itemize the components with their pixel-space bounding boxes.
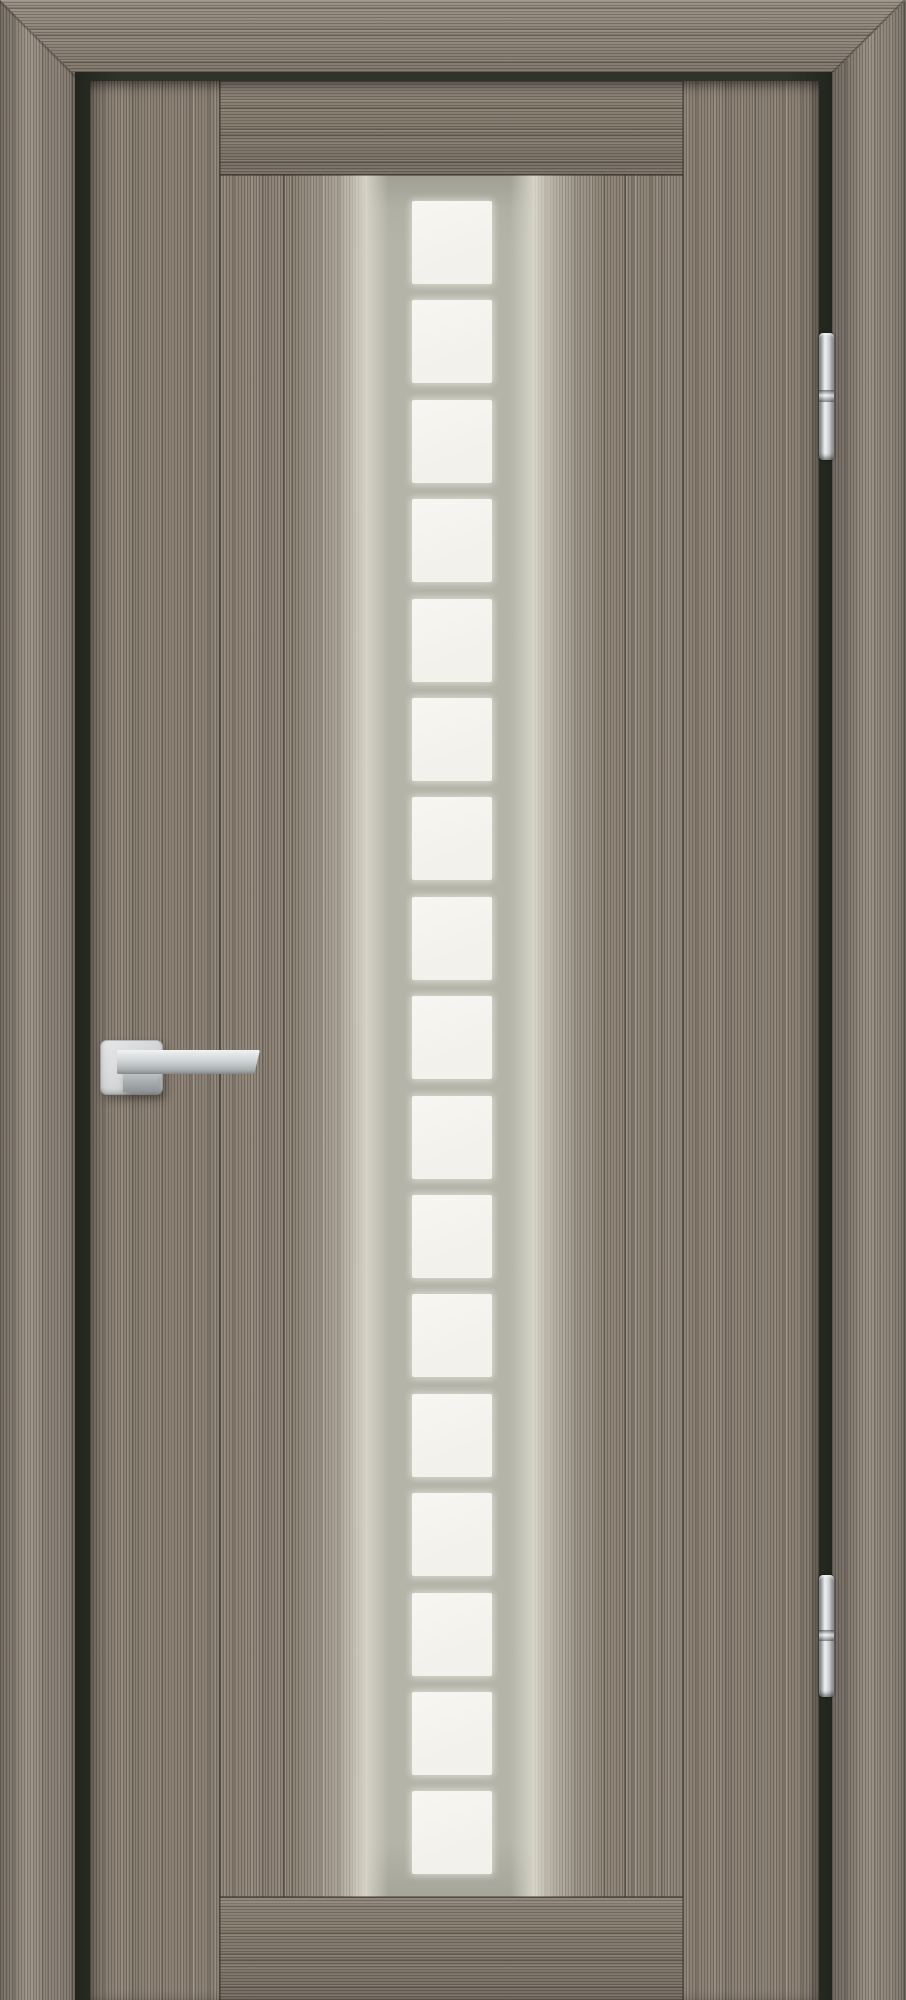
glass-pane bbox=[412, 897, 492, 980]
door-frame-left-casing bbox=[0, 0, 75, 2000]
handle-neck bbox=[123, 1072, 158, 1092]
glass-pane bbox=[412, 996, 492, 1079]
rail-seam-top bbox=[220, 174, 683, 176]
glass-pane bbox=[412, 1692, 492, 1775]
glass-pane bbox=[412, 1294, 492, 1377]
glass-pane bbox=[412, 1791, 492, 1874]
hinge-knuckle bbox=[819, 1630, 834, 1641]
glass-pane bbox=[412, 797, 492, 880]
door-frame-head-casing bbox=[0, 0, 906, 75]
door-stile-right bbox=[683, 81, 819, 2000]
door-panel-left-of-glass bbox=[220, 175, 367, 1897]
door-leaf bbox=[90, 81, 819, 2000]
door-rail-top bbox=[220, 81, 683, 175]
stile-seam-right bbox=[682, 81, 684, 2000]
glass-pane bbox=[412, 499, 492, 582]
glass-pane bbox=[412, 698, 492, 781]
rail-seam-bottom bbox=[220, 1896, 683, 1898]
glass-pane bbox=[412, 1394, 492, 1477]
hinge-top bbox=[819, 333, 834, 460]
hinge-knuckle bbox=[819, 390, 834, 401]
stile-seam-left bbox=[219, 81, 221, 2000]
panel-groove bbox=[624, 175, 626, 1897]
glass-pane bbox=[412, 300, 492, 383]
glass-pane bbox=[412, 1593, 492, 1676]
hinge-bottom bbox=[819, 1575, 834, 1697]
panel-groove bbox=[283, 175, 285, 1897]
glass-pane bbox=[412, 1493, 492, 1576]
door-photo bbox=[0, 0, 906, 2000]
glass-pane bbox=[412, 1096, 492, 1179]
glass-pane bbox=[412, 201, 492, 284]
glass-pane bbox=[412, 599, 492, 682]
door-panel-right-of-glass bbox=[532, 175, 683, 1897]
glass-pane bbox=[412, 1195, 492, 1278]
glass-pane bbox=[412, 400, 492, 483]
door-rail-bottom bbox=[220, 1897, 683, 2000]
handle-lever bbox=[117, 1050, 260, 1074]
glass-strip bbox=[367, 175, 532, 1897]
door-frame-right-casing bbox=[832, 0, 906, 2000]
